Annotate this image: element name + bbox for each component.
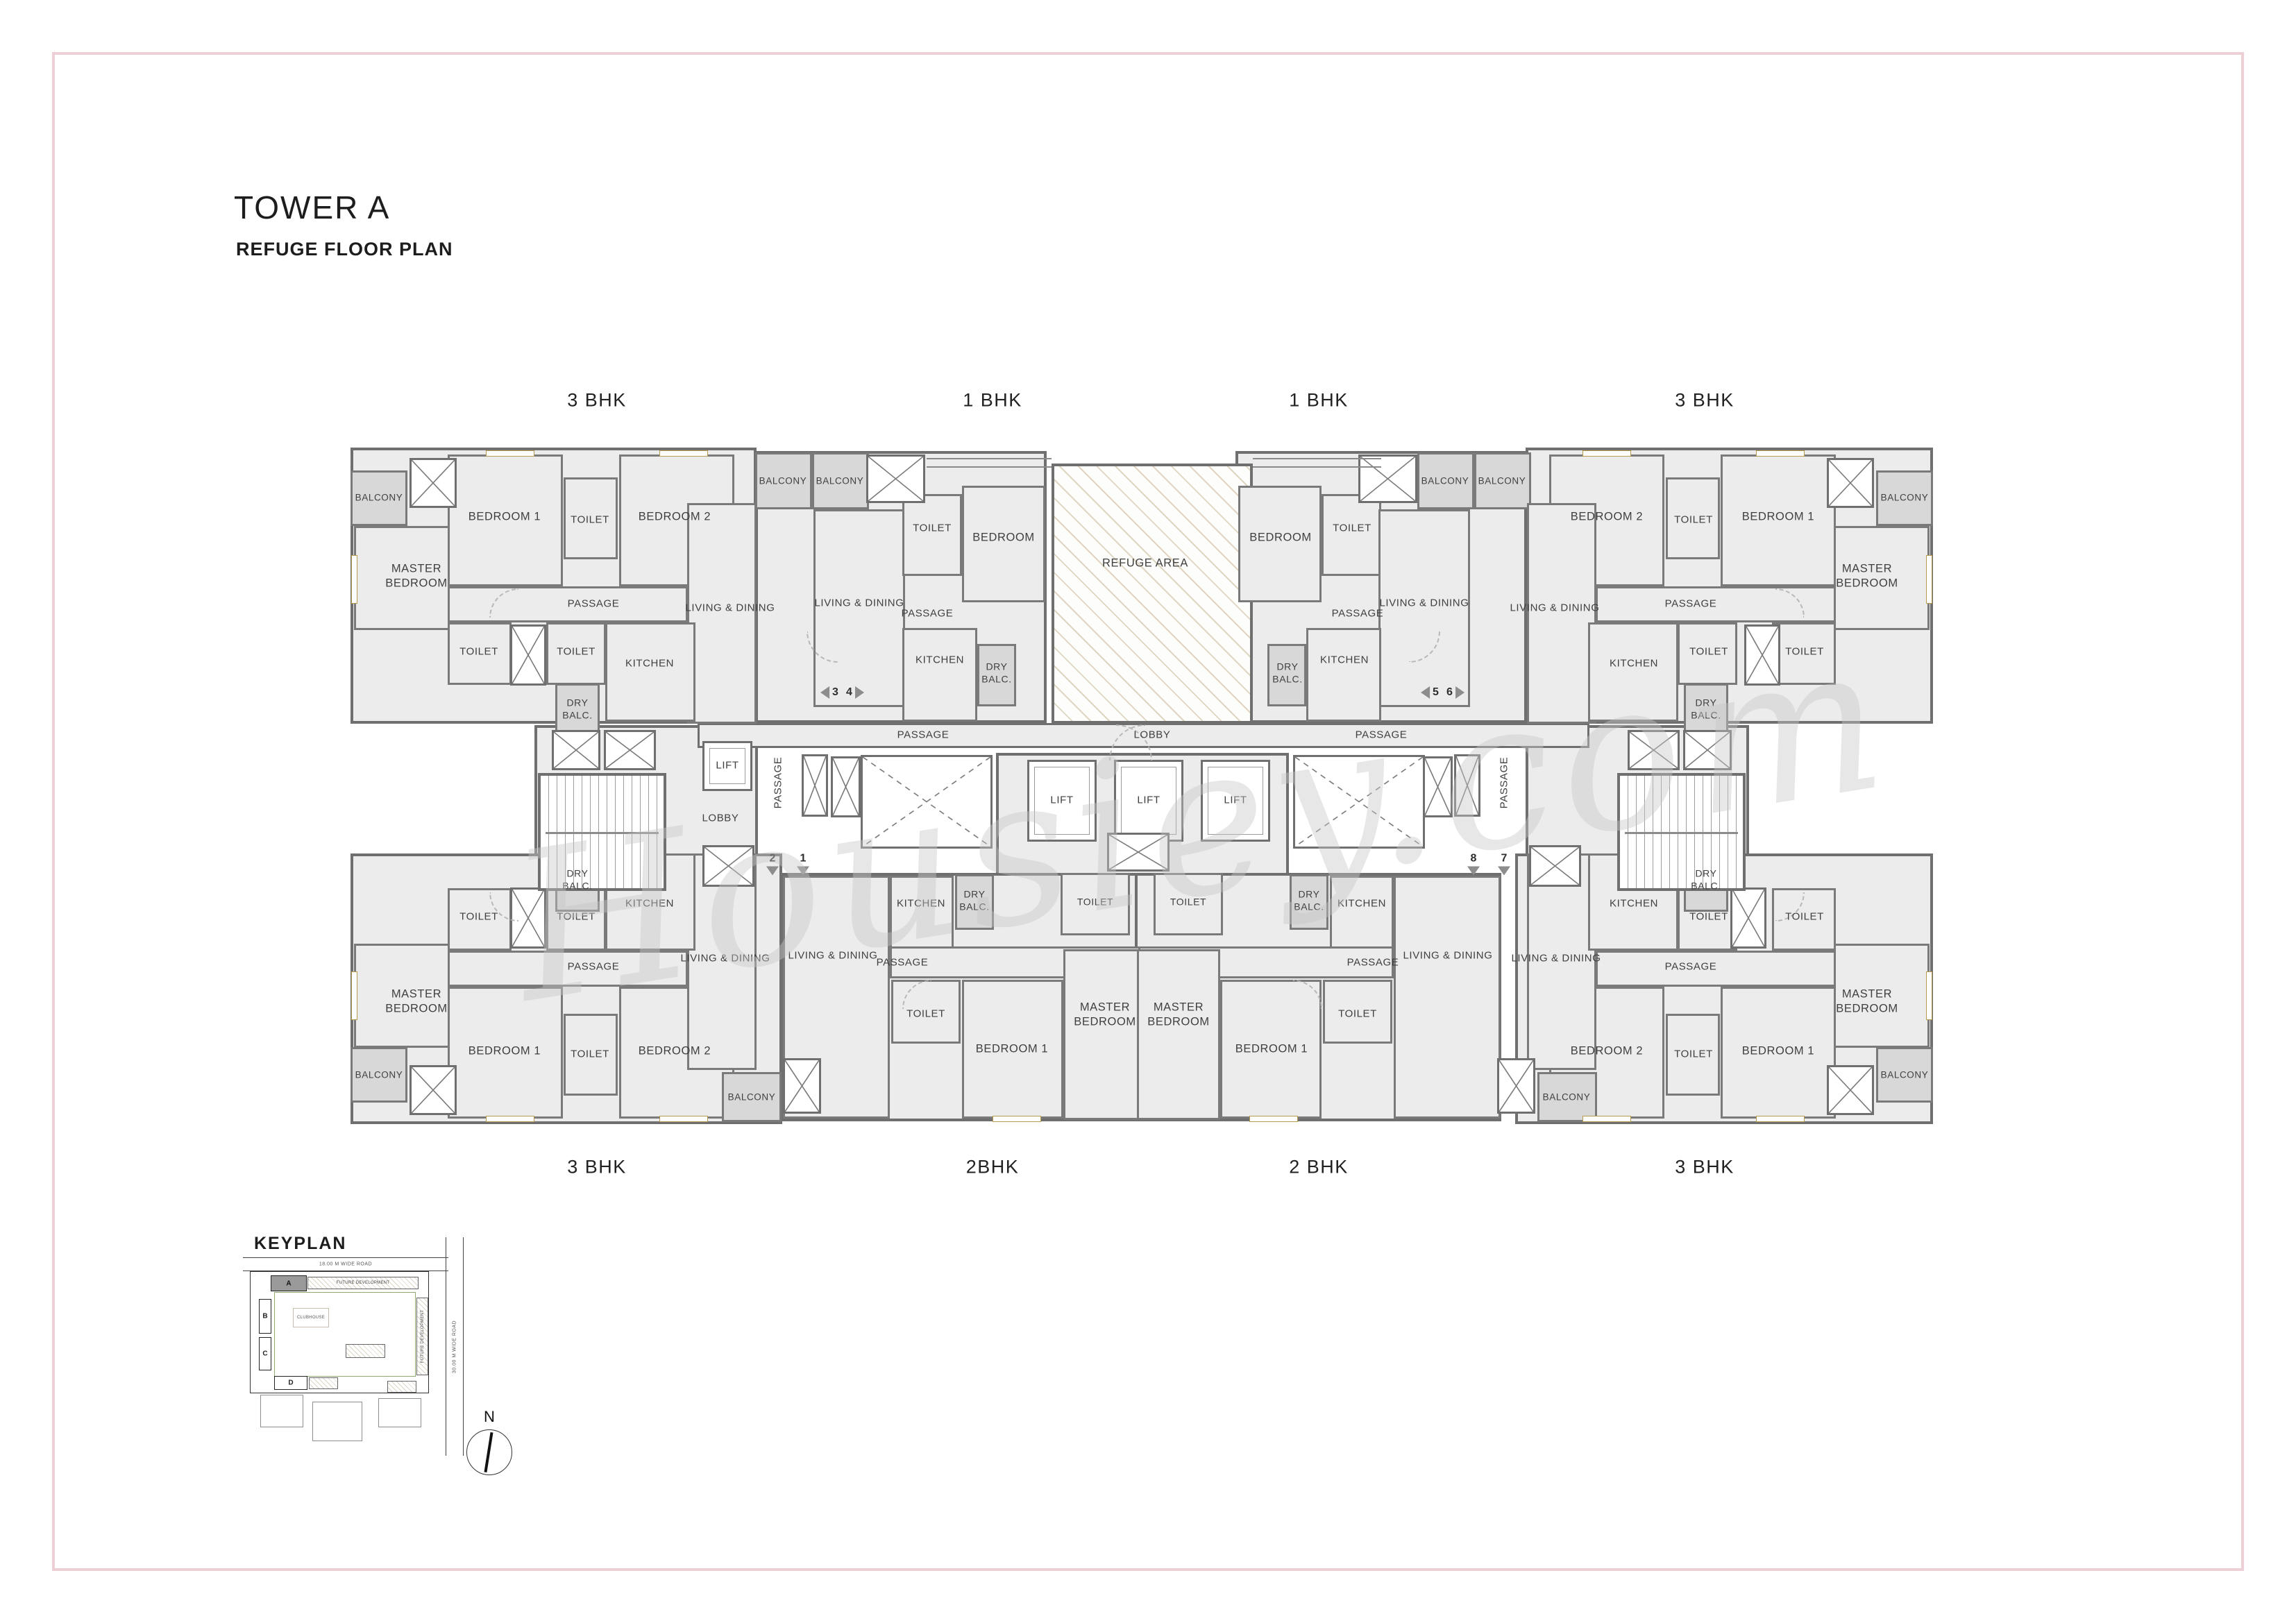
entrance-number: 8 xyxy=(1471,853,1477,865)
service-shaft xyxy=(1454,754,1480,817)
keyplan-future-development-label: FUTURE DEVELOPMENT xyxy=(337,1281,390,1285)
room-label: BALCONY xyxy=(1478,476,1526,488)
service-shaft xyxy=(1529,845,1581,887)
room-label: PASSAGE xyxy=(1332,608,1384,621)
room-label: DRY BALC. xyxy=(981,661,1011,686)
room-label: DRY BALC. xyxy=(1294,889,1324,913)
keyplan-road-right-label: 30.00 M WIDE ROAD xyxy=(453,1320,457,1373)
room-label: DRY BALC. xyxy=(562,697,592,722)
room-label: PASSAGE xyxy=(568,598,620,611)
room-label: TOILET xyxy=(1170,896,1206,908)
unit-type-label: 2 BHK xyxy=(1289,1157,1349,1178)
connector-line xyxy=(1253,458,1381,459)
room-label: PASSAGE xyxy=(1665,961,1717,974)
room-label: PASSAGE xyxy=(568,961,620,974)
room-label: PASSAGE xyxy=(877,957,929,970)
service-shaft xyxy=(1293,755,1425,849)
room-label: BEDROOM 2 xyxy=(639,1044,711,1059)
keyplan-tower-d: D xyxy=(274,1376,307,1390)
keyplan-tower-label: C xyxy=(262,1350,267,1358)
service-shaft xyxy=(1497,1058,1535,1114)
staircase xyxy=(1617,773,1746,891)
keyplan-road-top-label: 18.00 M WIDE ROAD xyxy=(319,1262,372,1267)
entrance-number: 1 xyxy=(800,853,807,865)
room-label: LIVING & DINING xyxy=(1379,597,1469,611)
service-shaft xyxy=(1423,756,1453,817)
room-label: LOBBY xyxy=(1133,729,1170,742)
window-mark xyxy=(1926,555,1932,604)
room-label: LIFT xyxy=(1137,794,1160,808)
keyplan-inner-boundary xyxy=(274,1292,416,1377)
keyplan-future-development xyxy=(387,1381,416,1393)
window-mark xyxy=(1756,1116,1805,1122)
room-label: LIVING & DINING xyxy=(1510,602,1599,615)
unit-type-label: 3 BHK xyxy=(567,390,627,411)
entrance-arrow-icon xyxy=(797,867,809,876)
page-title: TOWER A xyxy=(234,189,390,226)
keyplan-clubhouse: CLUBHOUSE xyxy=(293,1308,329,1327)
service-shaft xyxy=(702,845,754,887)
service-shaft xyxy=(1107,833,1170,872)
keyplan-context-building xyxy=(378,1398,421,1427)
unit-type-label: 3 BHK xyxy=(1675,1157,1734,1178)
keyplan-future-development: FUTURE DEVELOPMENT xyxy=(307,1277,419,1289)
unit-type-label: 3 BHK xyxy=(567,1157,627,1178)
room-label: LIFT xyxy=(1224,794,1247,808)
room-label: LIVING & DINING xyxy=(1403,950,1492,963)
window-mark xyxy=(1926,971,1932,1020)
service-shaft xyxy=(802,754,828,817)
window-mark xyxy=(1582,1116,1631,1122)
service-shaft xyxy=(861,755,993,849)
room-label: TOILET xyxy=(571,514,609,527)
room xyxy=(1063,949,1147,1120)
entrance-number: 6 xyxy=(1446,686,1453,699)
window-mark xyxy=(486,450,534,457)
room-label: LIVING & DINING xyxy=(680,953,770,966)
room-label: PASSAGE xyxy=(1499,757,1512,809)
keyplan-future-development xyxy=(346,1344,385,1358)
room-label: LIFT xyxy=(1050,794,1073,808)
entrance-number: 2 xyxy=(770,853,776,865)
room-label: BALCONY xyxy=(1421,476,1469,488)
room-label: TOILET xyxy=(557,646,596,659)
room-label: TOILET xyxy=(1674,1048,1713,1062)
room-label: LIVING & DINING xyxy=(1511,953,1601,966)
service-shaft xyxy=(410,458,457,508)
keyplan-tower-b: B xyxy=(259,1299,271,1334)
room-label: BEDROOM 2 xyxy=(639,510,711,525)
unit-type-label: 1 BHK xyxy=(1289,390,1349,411)
service-shaft xyxy=(1744,624,1780,686)
room-label: KITCHEN xyxy=(1610,658,1658,671)
entrance-number: 5 xyxy=(1433,686,1439,699)
room-label: PASSAGE xyxy=(773,757,786,809)
room-label: DRY BALC. xyxy=(1691,868,1721,892)
room-label: TOILET xyxy=(1785,646,1824,659)
staircase-divider xyxy=(1625,832,1738,834)
keyplan-context-building xyxy=(312,1402,362,1441)
refuge-area-hatch xyxy=(1052,464,1253,724)
room-label: DRY BALC. xyxy=(1691,697,1721,722)
room-label: TOILET xyxy=(1674,514,1713,527)
connector-line xyxy=(927,466,1052,468)
service-shaft xyxy=(410,1065,457,1115)
room-label: BALCONY xyxy=(816,476,864,488)
service-shaft xyxy=(1827,1065,1874,1115)
window-mark xyxy=(659,450,708,457)
service-shaft xyxy=(1827,458,1874,508)
room-label: MASTER BEDROOM xyxy=(1836,561,1898,590)
room-label: BEDROOM 1 xyxy=(1742,510,1814,525)
room xyxy=(1394,876,1501,1119)
room-label: PASSAGE xyxy=(1347,957,1399,970)
north-label: N xyxy=(484,1408,495,1426)
keyplan-tower-a-label: A xyxy=(286,1280,291,1287)
room xyxy=(1306,628,1381,722)
room-label: LIVING & DINING xyxy=(685,602,775,615)
room-label: TOILET xyxy=(1333,522,1371,536)
connector-line xyxy=(1253,466,1381,468)
entrance-number: 4 xyxy=(846,686,852,699)
room-label: KITCHEN xyxy=(897,898,945,911)
room-label: TOILET xyxy=(1338,1008,1377,1021)
window-mark xyxy=(351,971,357,1020)
room-label: MASTER BEDROOM xyxy=(385,561,447,590)
room xyxy=(1137,949,1220,1120)
room-label: BALCONY xyxy=(1881,1070,1929,1082)
window-mark xyxy=(1249,1116,1298,1122)
unit-entrance-number: 2 xyxy=(766,853,779,876)
room-label: KITCHEN xyxy=(1337,898,1386,911)
room-label: MASTER BEDROOM xyxy=(1147,1000,1209,1028)
service-shaft xyxy=(1358,454,1417,503)
room-label: DRY BALC. xyxy=(1272,661,1302,686)
room-label: BALCONY xyxy=(759,476,807,488)
entrance-arrow-icon xyxy=(766,867,779,876)
service-shaft xyxy=(552,730,600,770)
window-mark xyxy=(1756,450,1805,457)
room-label: LIVING & DINING xyxy=(788,950,877,963)
room-label: BEDROOM 1 xyxy=(469,1044,541,1059)
staircase-divider xyxy=(546,832,659,834)
room-label: TOILET xyxy=(571,1048,609,1062)
room-label: MASTER BEDROOM xyxy=(1836,987,1898,1015)
keyplan-tower-label: B xyxy=(262,1313,267,1320)
room-label: BEDROOM 1 xyxy=(976,1042,1048,1057)
unit-type-label: 1 BHK xyxy=(963,390,1022,411)
entrance-arrow-icon xyxy=(855,686,864,699)
room-label: BEDROOM xyxy=(1249,531,1311,545)
room-label: KITCHEN xyxy=(915,654,964,668)
room-label: TOILET xyxy=(906,1008,945,1021)
room-label: BEDROOM 1 xyxy=(1235,1042,1308,1057)
unit-entrance-number: 6 xyxy=(1446,686,1464,699)
service-shaft xyxy=(831,756,861,817)
service-shaft xyxy=(604,730,656,770)
service-shaft xyxy=(510,624,546,686)
room-label: TOILET xyxy=(557,911,596,924)
keyplan-tower-a-highlighted: A xyxy=(271,1275,307,1291)
connector-line xyxy=(927,458,1052,459)
room-label: REFUGE AREA xyxy=(1102,556,1188,571)
unit-entrance-number: 7 xyxy=(1498,853,1510,876)
room xyxy=(605,622,695,722)
keyplan-future-development xyxy=(309,1377,338,1389)
room-label: LIFT xyxy=(716,760,738,773)
unit-entrance-number: 8 xyxy=(1467,853,1480,876)
entrance-arrow-icon xyxy=(820,686,829,699)
room xyxy=(902,628,977,722)
room-label: BEDROOM 1 xyxy=(1742,1044,1814,1059)
room-label: BEDROOM 2 xyxy=(1571,510,1643,525)
room-label: TOILET xyxy=(459,646,498,659)
room-label: BALCONY xyxy=(728,1092,776,1104)
room-label: BEDROOM 2 xyxy=(1571,1044,1643,1059)
staircase xyxy=(538,773,666,891)
floor-plan-page: TOWER A REFUGE FLOOR PLAN BALCONYMASTER … xyxy=(0,0,2296,1623)
service-shaft xyxy=(1628,730,1680,770)
unit-entrance-number: 4 xyxy=(846,686,864,699)
room-label: DRY BALC. xyxy=(562,868,592,892)
entrance-arrow-icon xyxy=(1498,867,1510,876)
room-label: MASTER BEDROOM xyxy=(385,987,447,1015)
unit-type-label: 2BHK xyxy=(966,1157,1020,1178)
room-label: TOILET xyxy=(1689,911,1728,924)
room-label: TOILET xyxy=(913,522,952,536)
room-label: LIVING & DINING xyxy=(814,597,904,611)
unit-entrance-number: 5 xyxy=(1421,686,1439,699)
room-label: DRY BALC. xyxy=(959,889,989,913)
unit-entrance-number: 1 xyxy=(797,853,809,876)
room-label: TOILET xyxy=(1077,896,1113,908)
service-shaft xyxy=(783,1058,821,1114)
room-label: PASSAGE xyxy=(902,608,954,621)
keyplan-future-development-label: FUTURE DEVELOPMENT xyxy=(421,1310,425,1363)
keyplan-road-top: 18.00 M WIDE ROAD xyxy=(243,1257,448,1271)
room-label: KITCHEN xyxy=(625,658,674,671)
page-subtitle: REFUGE FLOOR PLAN xyxy=(236,239,453,260)
keyplan-future-development: FUTURE DEVELOPMENT xyxy=(416,1298,428,1375)
keyplan-context-building xyxy=(260,1395,303,1427)
keyplan-tower-label: D xyxy=(288,1379,293,1387)
room-label: LOBBY xyxy=(702,813,738,826)
entrance-number: 3 xyxy=(832,686,838,699)
window-mark xyxy=(351,555,357,604)
room-label: PASSAGE xyxy=(897,729,949,742)
room-label: TOILET xyxy=(1689,646,1728,659)
keyplan-tower-c: C xyxy=(259,1337,271,1370)
keyplan-clubhouse-label: CLUBHOUSE xyxy=(297,1316,325,1320)
room-label: BEDROOM 1 xyxy=(469,510,541,525)
keyplan-road-right: 30.00 M WIDE ROAD xyxy=(446,1237,464,1456)
service-shaft xyxy=(1683,730,1732,770)
room-label: PASSAGE xyxy=(1665,598,1717,611)
room xyxy=(1588,622,1678,722)
room-label: BEDROOM xyxy=(972,531,1034,545)
entrance-arrow-icon xyxy=(1467,867,1480,876)
room-label: BALCONY xyxy=(355,1070,403,1082)
room-label: BALCONY xyxy=(1543,1092,1591,1104)
unit-type-label: 3 BHK xyxy=(1675,390,1734,411)
window-mark xyxy=(993,1116,1041,1122)
window-mark xyxy=(486,1116,534,1122)
entrance-arrow-icon xyxy=(1421,686,1430,699)
room-label: BALCONY xyxy=(355,493,403,504)
entrance-arrow-icon xyxy=(1455,686,1464,699)
window-mark xyxy=(1582,450,1631,457)
window-mark xyxy=(659,1116,708,1122)
service-shaft xyxy=(1730,887,1766,949)
room-label: BALCONY xyxy=(1881,493,1929,504)
room-label: TOILET xyxy=(459,911,498,924)
room-label: KITCHEN xyxy=(1320,654,1369,668)
entrance-number: 7 xyxy=(1501,853,1508,865)
keyplan-title: KEYPLAN xyxy=(254,1234,346,1254)
room-label: TOILET xyxy=(1785,911,1824,924)
room-label: KITCHEN xyxy=(625,898,674,911)
room-label: KITCHEN xyxy=(1610,898,1658,911)
unit-entrance-number: 3 xyxy=(820,686,838,699)
room-label: PASSAGE xyxy=(1356,729,1408,742)
service-shaft xyxy=(866,454,925,503)
room-label: MASTER BEDROOM xyxy=(1074,1000,1136,1028)
